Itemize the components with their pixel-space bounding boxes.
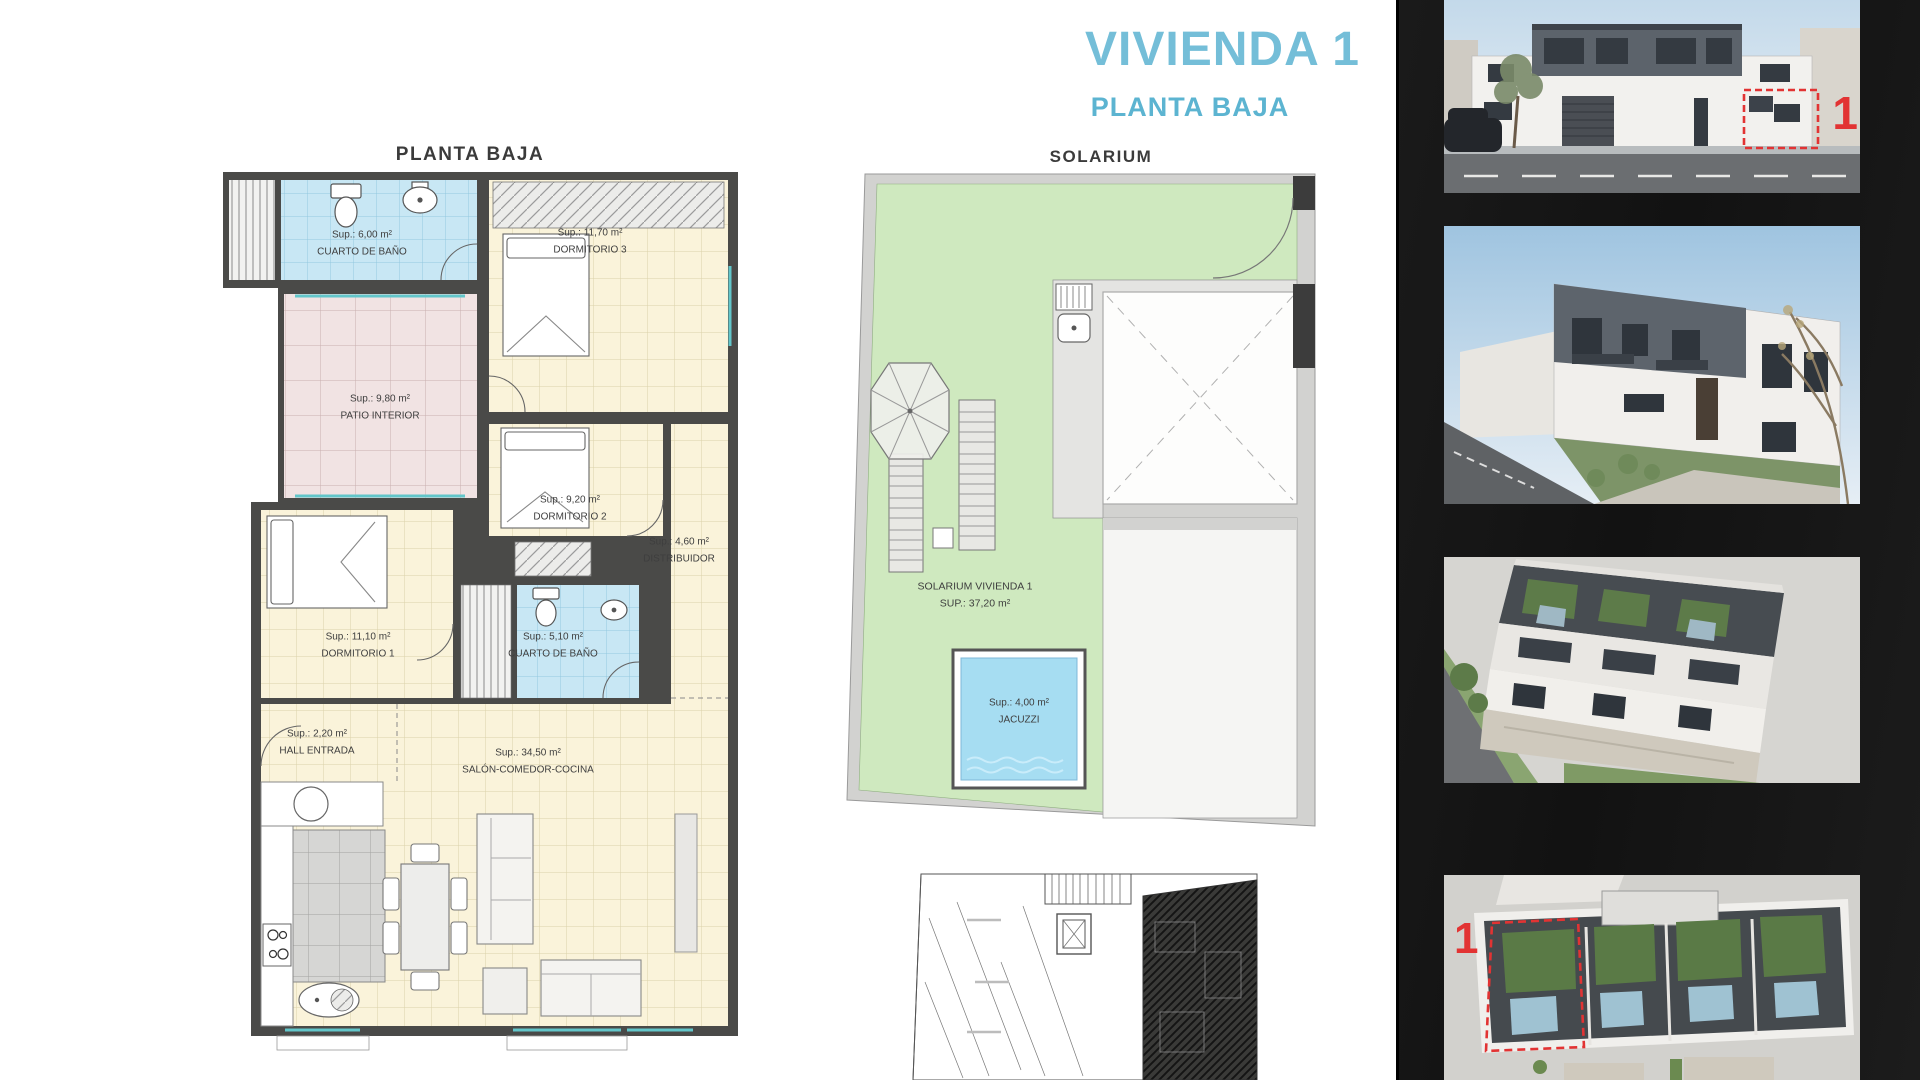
unit-1-marker-elevation: 1 [1832, 90, 1858, 136]
label-bedroom-1-area: Sup.: 11,10 m² [321, 630, 394, 647]
label-hallway-name: DISTRIBUIDOR [643, 551, 715, 568]
floorplan-drawing [215, 170, 745, 1054]
solarium-drawing [835, 172, 1335, 840]
label-bathroom-1-name: CUARTO DE BAÑO [317, 244, 407, 261]
label-solarium-line1: SOLARIUM VIVIENDA 1 [918, 579, 1033, 596]
key-plan [905, 862, 1275, 1080]
wardrobe [515, 542, 591, 576]
photo-perspective-svg [1444, 226, 1860, 504]
door-jamb-top [1293, 176, 1315, 210]
label-bedroom-2-area: Sup.: 9,20 m² [533, 493, 606, 510]
label-hall-name: HALL ENTRADA [279, 743, 354, 760]
photo-aerial-svg [1444, 557, 1860, 783]
label-hall: Sup.: 2,20 m² HALL ENTRADA [279, 727, 354, 760]
page-title: VIVIENDA 1 [950, 22, 1360, 77]
parasol [871, 363, 949, 459]
label-patio: Sup.: 9,80 m² PATIO INTERIOR [340, 392, 419, 425]
photo-rooftop-svg [1444, 875, 1860, 1080]
neighbour-band [1103, 518, 1297, 530]
label-jacuzzi: Sup.: 4,00 m² JACUZZI [989, 696, 1049, 729]
solarium-svg [835, 172, 1335, 840]
photo-street-elevation-svg [1444, 0, 1860, 193]
closet-bedroom-3 [493, 182, 724, 228]
floorplan-svg [215, 170, 745, 1054]
label-bathroom-2-name: CUARTO DE BAÑO [508, 646, 598, 663]
label-bathroom-2: Sup.: 5,10 m² CUARTO DE BAÑO [508, 630, 598, 663]
label-bathroom-1-area: Sup.: 6,00 m² [317, 228, 407, 245]
door-jamb-bottom [1293, 284, 1315, 368]
unit-1-marker-rooftop: 1 [1454, 917, 1478, 961]
label-bathroom-2-area: Sup.: 5,10 m² [508, 630, 598, 647]
label-living-area: Sup.: 34,50 m² [462, 746, 594, 763]
bed-bedroom-1 [267, 516, 387, 608]
label-bedroom-1-name: DORMITORIO 1 [321, 646, 394, 663]
label-patio-name: PATIO INTERIOR [340, 408, 419, 425]
photo-rooftop: 1 [1444, 875, 1860, 1080]
key-plan-elevator [1057, 914, 1091, 954]
label-patio-area: Sup.: 9,80 m² [340, 392, 419, 409]
label-jacuzzi-area: Sup.: 4,00 m² [989, 696, 1049, 713]
label-solarium: SOLARIUM VIVIENDA 1 SUP.: 37,20 m² [918, 579, 1033, 614]
page-subtitle: PLANTA BAJA [1020, 92, 1360, 123]
label-hallway: Sup.: 4,60 m² DISTRIBUIDOR [643, 535, 715, 568]
label-jacuzzi-name: JACUZZI [989, 712, 1049, 729]
window-sills [277, 1036, 627, 1050]
photo-sidebar: 1 [1396, 0, 1920, 1080]
label-bedroom-3-name: DORMITORIO 3 [553, 242, 626, 259]
key-plan-svg [905, 862, 1275, 1080]
photo-street-elevation: 1 [1444, 0, 1860, 193]
label-living-name: SALÓN-COMEDOR-COCINA [462, 762, 594, 779]
label-bedroom-2-name: DORMITORIO 2 [533, 509, 606, 526]
page: { "header": { "title": "VIVIENDA 1", "su… [0, 0, 1920, 1080]
label-bedroom-2: Sup.: 9,20 m² DORMITORIO 2 [533, 493, 606, 526]
room-porch [229, 180, 275, 280]
label-living: Sup.: 34,50 m² SALÓN-COMEDOR-COCINA [462, 746, 594, 779]
photo-aerial [1444, 557, 1860, 783]
solarium-title: SOLARIUM [980, 147, 1222, 167]
label-bedroom-3-area: Sup.: 11,70 m² [553, 226, 626, 243]
photo-perspective [1444, 226, 1860, 504]
label-bedroom-3: Sup.: 11,70 m² DORMITORIO 3 [553, 226, 626, 259]
label-bathroom-1: Sup.: 6,00 m² CUARTO DE BAÑO [317, 228, 407, 261]
neighbour-area [1103, 518, 1297, 818]
label-hall-area: Sup.: 2,20 m² [279, 727, 354, 744]
closet-louver [461, 585, 511, 698]
label-solarium-line2: SUP.: 37,20 m² [918, 596, 1033, 613]
label-bedroom-1: Sup.: 11,10 m² DORMITORIO 1 [321, 630, 394, 663]
label-hallway-area: Sup.: 4,60 m² [643, 535, 715, 552]
floorplan-title: PLANTA BAJA [330, 144, 610, 166]
